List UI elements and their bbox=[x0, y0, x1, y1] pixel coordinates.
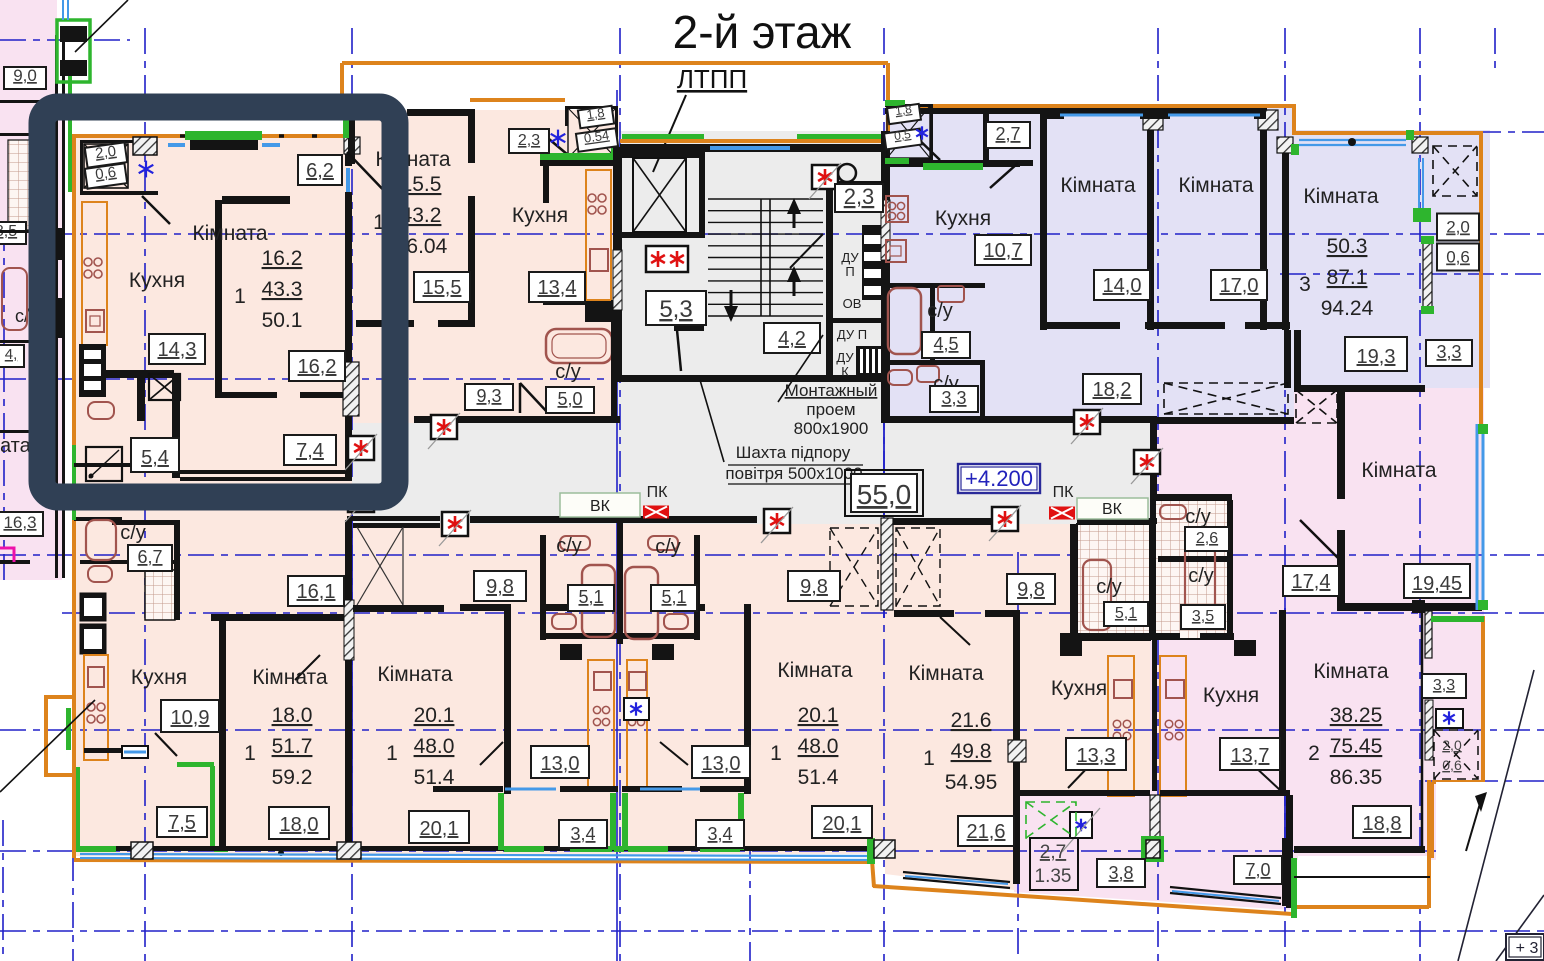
svg-text:повітря 500х1000: повітря 500х1000 bbox=[725, 464, 862, 483]
svg-text:9,3: 9,3 bbox=[476, 386, 501, 406]
svg-text:20,1: 20,1 bbox=[823, 813, 862, 835]
svg-text:ЛТПП: ЛТПП bbox=[677, 64, 747, 94]
svg-text:3,8: 3,8 bbox=[1108, 863, 1133, 883]
svg-text:1: 1 bbox=[386, 742, 398, 765]
svg-text:18,8: 18,8 bbox=[1363, 813, 1402, 835]
svg-text:Монтажный: Монтажный bbox=[785, 381, 878, 400]
svg-text:5,1: 5,1 bbox=[1115, 605, 1137, 622]
svg-text:с/у: с/у bbox=[1188, 565, 1214, 587]
svg-text:20.1: 20.1 bbox=[414, 704, 455, 727]
svg-text:9,8: 9,8 bbox=[800, 576, 828, 598]
svg-text:0,6: 0,6 bbox=[94, 164, 117, 184]
svg-text:800х1900: 800х1900 bbox=[794, 419, 869, 438]
svg-text:20,1: 20,1 bbox=[420, 818, 459, 840]
svg-text:2,3: 2,3 bbox=[518, 132, 540, 149]
svg-text:18,2: 18,2 bbox=[1093, 379, 1132, 401]
svg-text:3,3: 3,3 bbox=[941, 388, 966, 408]
svg-text:2,0: 2,0 bbox=[1446, 218, 1470, 237]
svg-text:13,0: 13,0 bbox=[702, 753, 741, 775]
svg-text:1.35: 1.35 bbox=[1035, 866, 1072, 887]
svg-text:2,0: 2,0 bbox=[1442, 737, 1462, 753]
svg-text:1: 1 bbox=[234, 285, 246, 308]
svg-text:3,5: 3,5 bbox=[1192, 608, 1214, 625]
svg-text:7,4: 7,4 bbox=[296, 440, 324, 462]
svg-text:9,0: 9,0 bbox=[13, 66, 37, 85]
svg-text:1: 1 bbox=[770, 742, 782, 765]
svg-text:51.4: 51.4 bbox=[414, 766, 455, 789]
svg-text:ОВ: ОВ bbox=[843, 296, 862, 311]
svg-text:17,0: 17,0 bbox=[1220, 275, 1259, 297]
svg-text:2: 2 bbox=[1308, 742, 1320, 765]
svg-text:ДУ П: ДУ П bbox=[837, 327, 867, 342]
svg-text:с/у: с/у bbox=[556, 535, 582, 557]
svg-text:21,6: 21,6 bbox=[967, 821, 1006, 843]
svg-text:13,4: 13,4 bbox=[538, 277, 577, 299]
svg-text:20.1: 20.1 bbox=[798, 704, 839, 727]
svg-text:10,9: 10,9 bbox=[171, 707, 210, 729]
svg-text:18,0: 18,0 bbox=[280, 814, 319, 836]
svg-text:50.1: 50.1 bbox=[262, 309, 303, 332]
svg-text:7,5: 7,5 bbox=[168, 812, 196, 834]
svg-text:Кухня: Кухня bbox=[131, 666, 187, 689]
svg-text:86.35: 86.35 bbox=[1330, 766, 1383, 789]
svg-text:16,3: 16,3 bbox=[3, 513, 36, 532]
svg-text:ата: ата bbox=[0, 435, 32, 457]
svg-text:2-й этаж: 2-й этаж bbox=[673, 6, 852, 58]
svg-text:21.6: 21.6 bbox=[951, 709, 992, 732]
svg-text:13,3: 13,3 bbox=[1077, 745, 1116, 767]
svg-text:4,: 4, bbox=[5, 346, 18, 363]
svg-text:5,1: 5,1 bbox=[578, 587, 603, 607]
svg-text:3,4: 3,4 bbox=[570, 824, 595, 844]
svg-text:Кімната: Кімната bbox=[908, 662, 984, 685]
svg-text:3,3: 3,3 bbox=[1436, 342, 1461, 362]
svg-text:16.2: 16.2 bbox=[262, 247, 303, 270]
svg-text:19,45: 19,45 bbox=[1412, 573, 1462, 595]
svg-text:5,1: 5,1 bbox=[661, 587, 686, 607]
svg-text:6,2: 6,2 bbox=[306, 160, 334, 182]
svg-text:ВК: ВК bbox=[590, 498, 611, 515]
svg-text:с/у: с/у bbox=[120, 522, 146, 544]
svg-text:2,0: 2,0 bbox=[94, 143, 117, 163]
svg-text:5,3: 5,3 bbox=[659, 296, 692, 323]
svg-text:ВК: ВК bbox=[1102, 501, 1123, 518]
svg-text:Кімната: Кімната bbox=[1178, 174, 1254, 197]
svg-text:4,2: 4,2 bbox=[778, 328, 806, 350]
svg-text:3: 3 bbox=[1299, 273, 1311, 296]
svg-text:16,1: 16,1 bbox=[297, 581, 336, 603]
svg-text:1: 1 bbox=[244, 742, 256, 765]
svg-text:0,6: 0,6 bbox=[1446, 248, 1470, 267]
svg-text:1: 1 bbox=[923, 747, 935, 770]
svg-text:с/у: с/у bbox=[655, 536, 681, 558]
svg-text:Кухня: Кухня bbox=[512, 204, 568, 227]
svg-text:5,0: 5,0 bbox=[557, 389, 582, 409]
svg-text:14,0: 14,0 bbox=[1103, 275, 1142, 297]
svg-text:Кімната: Кімната bbox=[252, 666, 328, 689]
svg-text:94.24: 94.24 bbox=[1321, 297, 1374, 320]
svg-text:Кімната: Кімната bbox=[1303, 185, 1379, 208]
svg-text:ДУ: ДУ bbox=[836, 350, 854, 365]
svg-text:48.0: 48.0 bbox=[798, 735, 839, 758]
svg-text:18.0: 18.0 bbox=[272, 704, 313, 727]
svg-text:с/у: с/у bbox=[1096, 576, 1122, 598]
svg-text:13,0: 13,0 bbox=[541, 753, 580, 775]
svg-text:4,5: 4,5 bbox=[933, 334, 958, 354]
svg-text:Кімната: Кімната bbox=[1313, 660, 1389, 683]
svg-text:14,3: 14,3 bbox=[158, 339, 197, 361]
svg-text:2,7: 2,7 bbox=[995, 124, 1020, 144]
svg-text:Кухня: Кухня bbox=[1051, 677, 1107, 700]
svg-text:Шахта підпору: Шахта підпору bbox=[736, 443, 851, 462]
svg-text:Кухня: Кухня bbox=[1203, 684, 1259, 707]
svg-text:51.4: 51.4 bbox=[798, 766, 839, 789]
svg-text:+4.200: +4.200 bbox=[965, 466, 1033, 491]
svg-text:3,3: 3,3 bbox=[1433, 677, 1455, 694]
svg-text:ДУ: ДУ bbox=[841, 250, 859, 265]
svg-text:75.45: 75.45 bbox=[1330, 735, 1383, 758]
svg-text:10,7: 10,7 bbox=[984, 240, 1023, 262]
svg-text:49.8: 49.8 bbox=[951, 740, 992, 763]
svg-text:Кімната: Кімната bbox=[1060, 174, 1136, 197]
svg-text:+ 3: + 3 bbox=[1516, 940, 1539, 957]
svg-text:51.7: 51.7 bbox=[272, 735, 313, 758]
svg-text:Кімната: Кімната bbox=[777, 659, 853, 682]
svg-text:1,8: 1,8 bbox=[586, 105, 606, 122]
svg-text:П: П bbox=[845, 264, 854, 279]
svg-text:19,3: 19,3 bbox=[1357, 346, 1396, 368]
svg-text:55,0: 55,0 bbox=[857, 479, 912, 510]
svg-text:Кімната: Кімната bbox=[377, 663, 453, 686]
svg-text:с/у: с/у bbox=[927, 300, 953, 322]
svg-text:с/у: с/у bbox=[555, 361, 581, 383]
svg-text:5,4: 5,4 bbox=[141, 447, 169, 469]
svg-text:0,5: 0,5 bbox=[893, 127, 912, 143]
svg-text:Кухня: Кухня bbox=[935, 207, 991, 230]
svg-text:50.3: 50.3 bbox=[1327, 235, 1368, 258]
svg-text:16,2: 16,2 bbox=[298, 356, 337, 378]
svg-text:с/у: с/у bbox=[1185, 506, 1211, 528]
svg-text:Кімната: Кімната bbox=[192, 222, 268, 245]
svg-text:2,7: 2,7 bbox=[1040, 842, 1066, 863]
svg-text:54.95: 54.95 bbox=[945, 771, 998, 794]
svg-text:1,8: 1,8 bbox=[894, 102, 913, 118]
svg-text:ПК: ПК bbox=[647, 484, 669, 501]
svg-text:Кімната: Кімната bbox=[1361, 459, 1437, 482]
svg-text:Кухня: Кухня bbox=[129, 269, 185, 292]
svg-text:38.25: 38.25 bbox=[1330, 704, 1383, 727]
svg-text:15,5: 15,5 bbox=[423, 277, 462, 299]
svg-text:ПК: ПК bbox=[1053, 484, 1075, 501]
svg-text:87.1: 87.1 bbox=[1327, 266, 1368, 289]
svg-text:проем: проем bbox=[806, 400, 855, 419]
svg-text:13,7: 13,7 bbox=[1231, 745, 1270, 767]
svg-text:59.2: 59.2 bbox=[272, 766, 313, 789]
svg-text:17,4: 17,4 bbox=[1292, 571, 1331, 593]
svg-text:9,8: 9,8 bbox=[1017, 579, 1045, 601]
svg-text:2,6: 2,6 bbox=[1196, 530, 1218, 547]
svg-text:2,3: 2,3 bbox=[844, 184, 875, 209]
svg-text:К: К bbox=[841, 364, 849, 379]
svg-text:7,0: 7,0 bbox=[1245, 860, 1270, 880]
svg-text:0,6: 0,6 bbox=[1442, 757, 1462, 773]
svg-text:43.3: 43.3 bbox=[262, 278, 303, 301]
svg-text:6,7: 6,7 bbox=[137, 547, 162, 567]
svg-text:9,8: 9,8 bbox=[486, 576, 514, 598]
svg-text:3,4: 3,4 bbox=[707, 824, 732, 844]
svg-text:48.0: 48.0 bbox=[414, 735, 455, 758]
